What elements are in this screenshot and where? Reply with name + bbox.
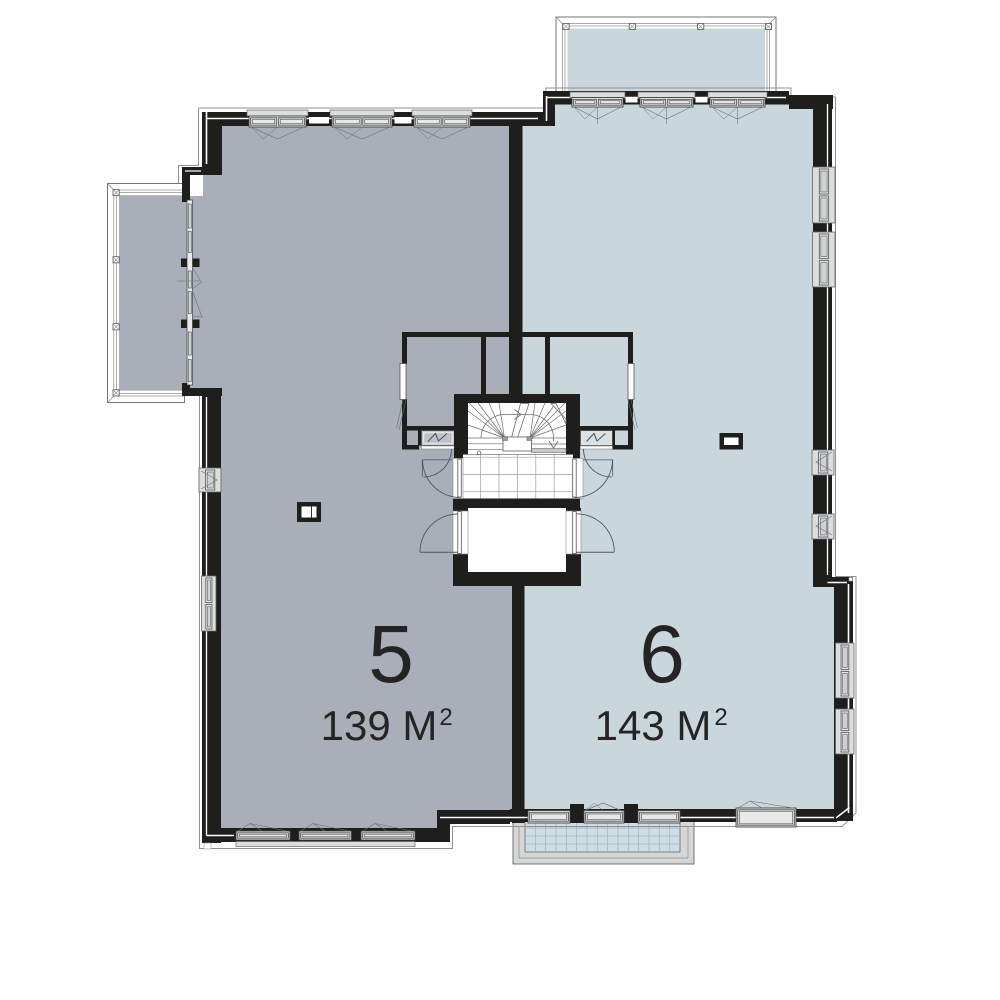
svg-text:2: 2 [714,704,727,731]
svg-text:5: 5 [368,609,414,700]
svg-text:2: 2 [439,704,452,731]
svg-text:143 M: 143 M [595,702,712,749]
svg-text:139 M: 139 M [321,702,438,749]
svg-text:6: 6 [639,609,685,700]
